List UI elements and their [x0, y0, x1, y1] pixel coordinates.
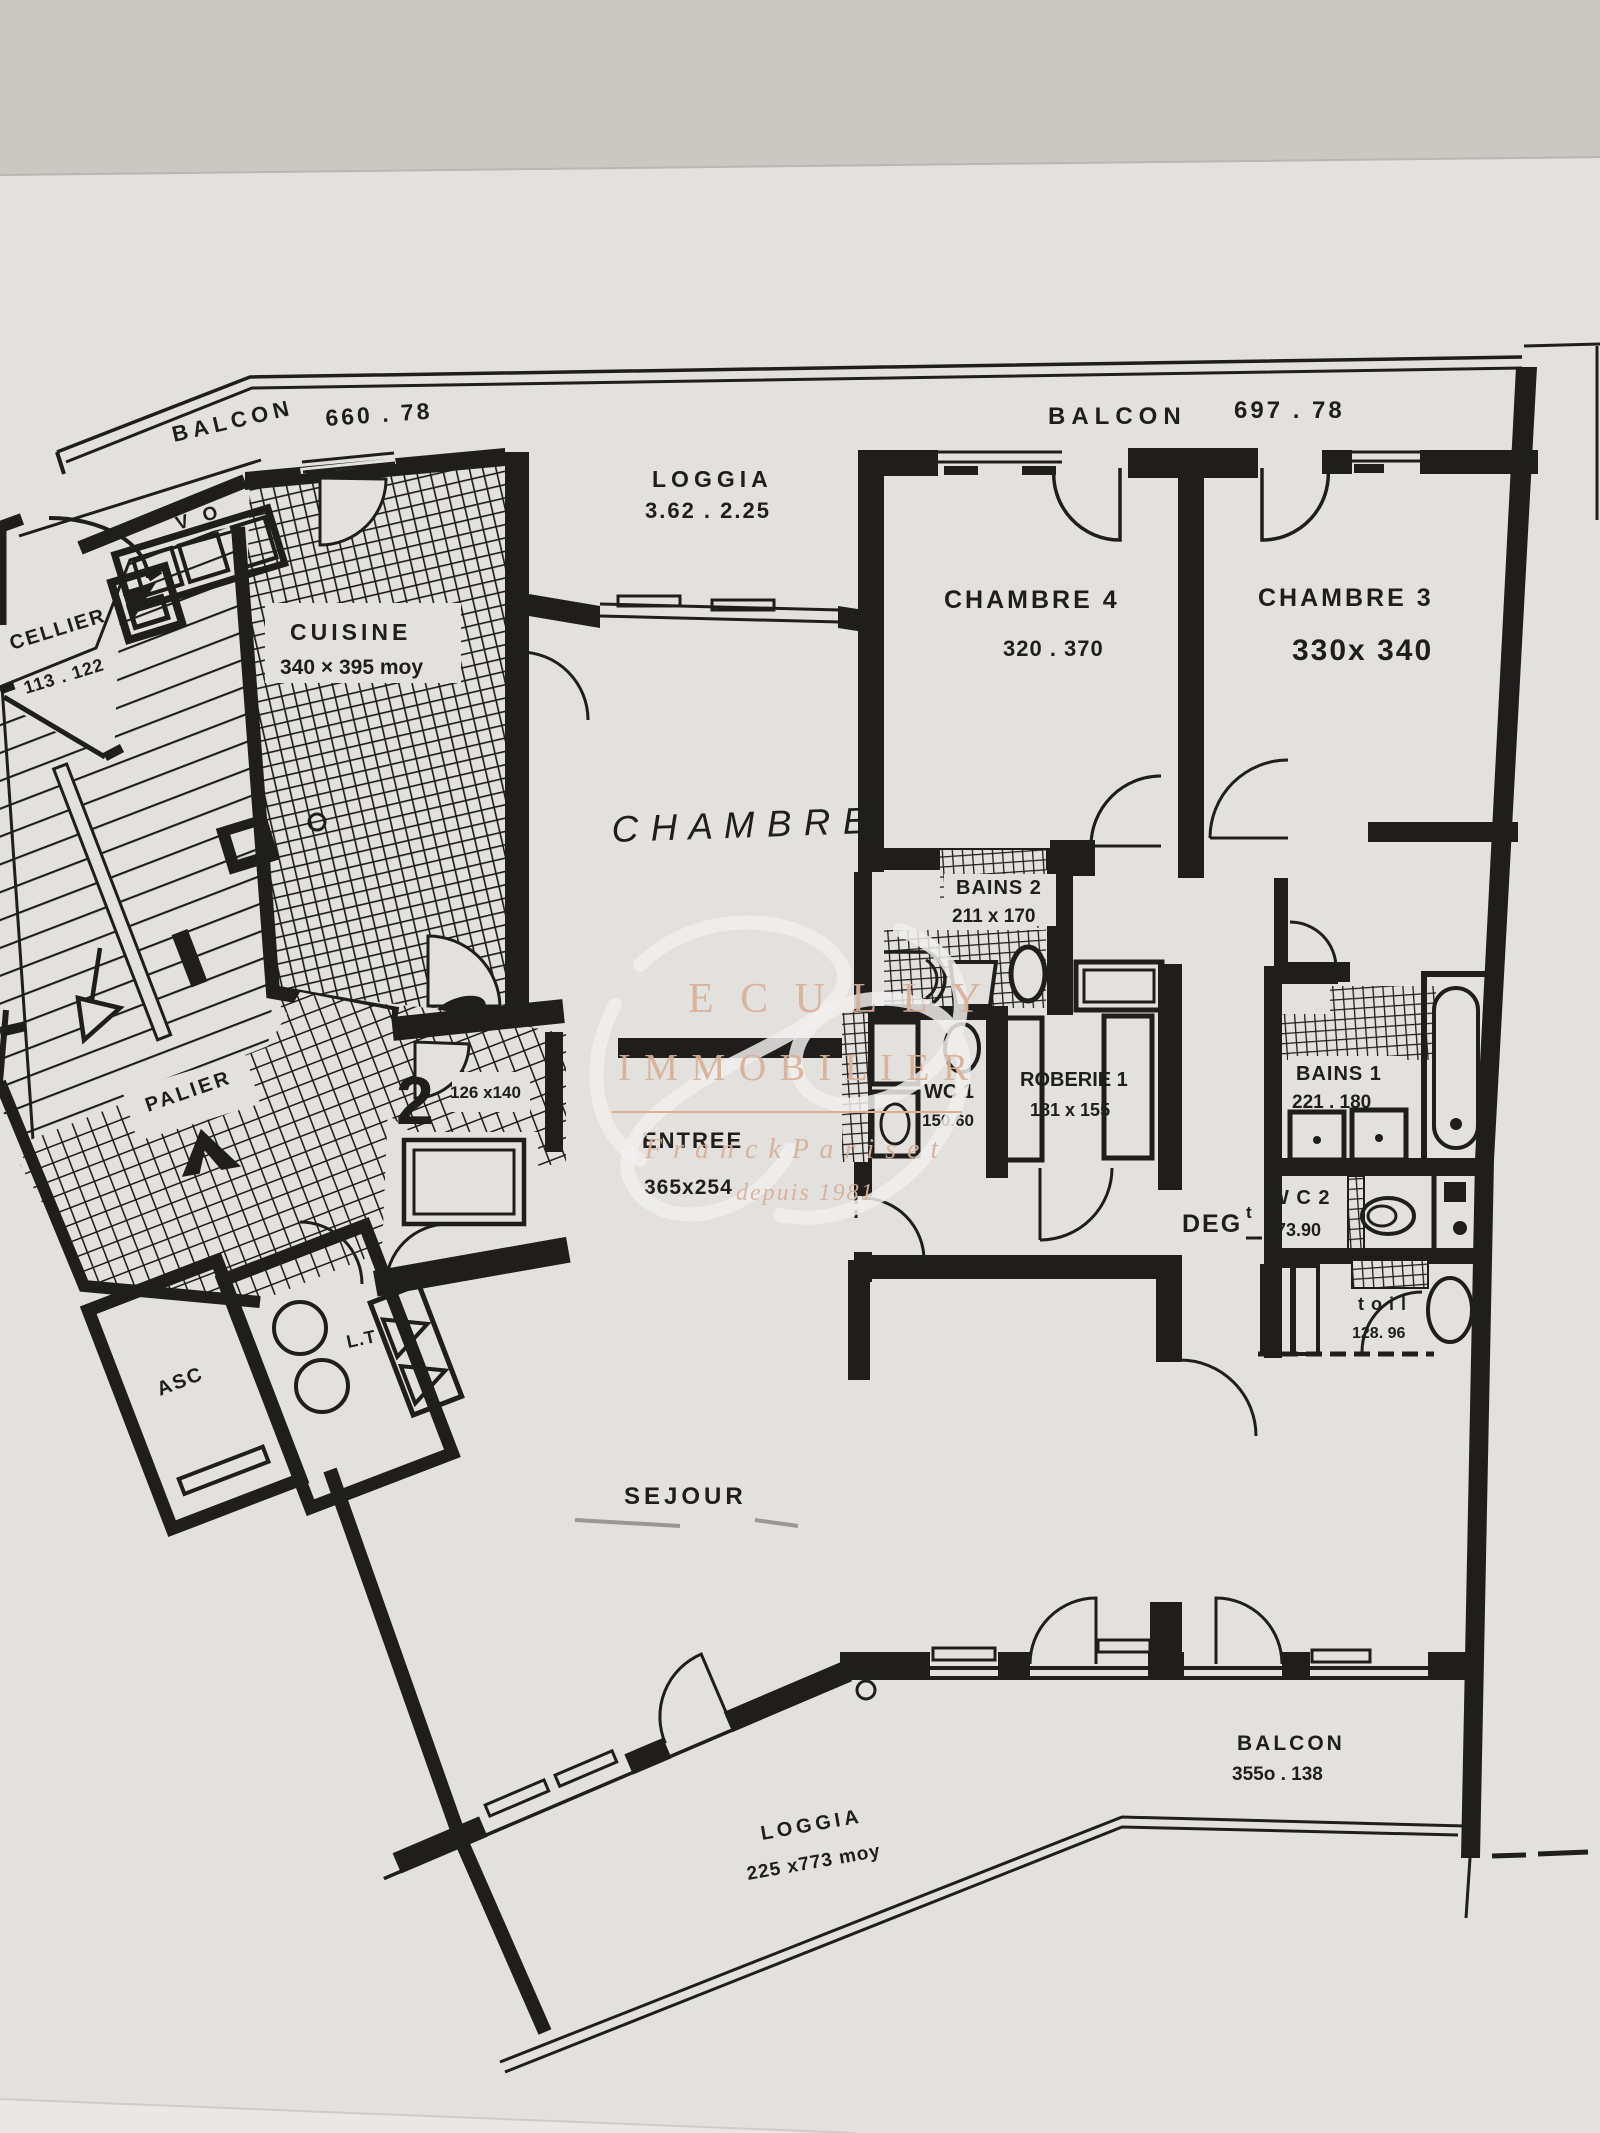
svg-text:320 . 370: 320 . 370: [1003, 636, 1104, 661]
svg-text:I M M O B I L I E R: I M M O B I L I E R: [618, 1047, 970, 1089]
svg-text:BALCON: BALCON: [1237, 1732, 1345, 1755]
svg-text:340 × 395 moy: 340 × 395 moy: [280, 656, 423, 679]
svg-text:128. 96: 128. 96: [1352, 1325, 1405, 1342]
svg-text:CHAMBRE 4: CHAMBRE 4: [944, 586, 1120, 614]
svg-text:BALCON: BALCON: [1048, 403, 1187, 430]
svg-text:E C U L L Y: E C U L L Y: [688, 976, 989, 1022]
svg-text:3.62 . 2.25: 3.62 . 2.25: [645, 498, 771, 523]
svg-text:W C 2: W C 2: [1270, 1187, 1331, 1209]
svg-text:SEJOUR: SEJOUR: [624, 1483, 747, 1510]
svg-text:BAINS 2: BAINS 2: [956, 877, 1042, 899]
svg-text:LOGGIA: LOGGIA: [652, 466, 773, 492]
svg-text:ROBERIE 1: ROBERIE 1: [1020, 1069, 1128, 1091]
svg-text:BAINS 1: BAINS 1: [1296, 1063, 1382, 1085]
svg-text:2: 2: [396, 1063, 434, 1139]
svg-text:CUISINE: CUISINE: [290, 619, 411, 645]
svg-text:697 . 78: 697 . 78: [1234, 397, 1345, 424]
svg-text:DEG: DEG: [1182, 1210, 1242, 1238]
svg-text:depuis 1981: depuis 1981: [736, 1180, 875, 1206]
svg-text:211 x 170: 211 x 170: [952, 906, 1035, 927]
svg-text:126 x140: 126 x140: [450, 1083, 521, 1102]
svg-text:181 x 155: 181 x 155: [1030, 1100, 1110, 1120]
svg-text:355o . 138: 355o . 138: [1232, 1764, 1323, 1785]
svg-text:173.90: 173.90: [1266, 1220, 1321, 1240]
svg-text:365x254: 365x254: [644, 1176, 733, 1199]
svg-text:CHAMBRE 3: CHAMBRE 3: [1258, 584, 1434, 612]
svg-text:t: t: [1246, 1203, 1252, 1222]
svg-text:F r a n c k P a r i s e t: F r a n c k P a r i s e t: [644, 1134, 940, 1165]
svg-text:330x 340: 330x 340: [1292, 634, 1433, 667]
